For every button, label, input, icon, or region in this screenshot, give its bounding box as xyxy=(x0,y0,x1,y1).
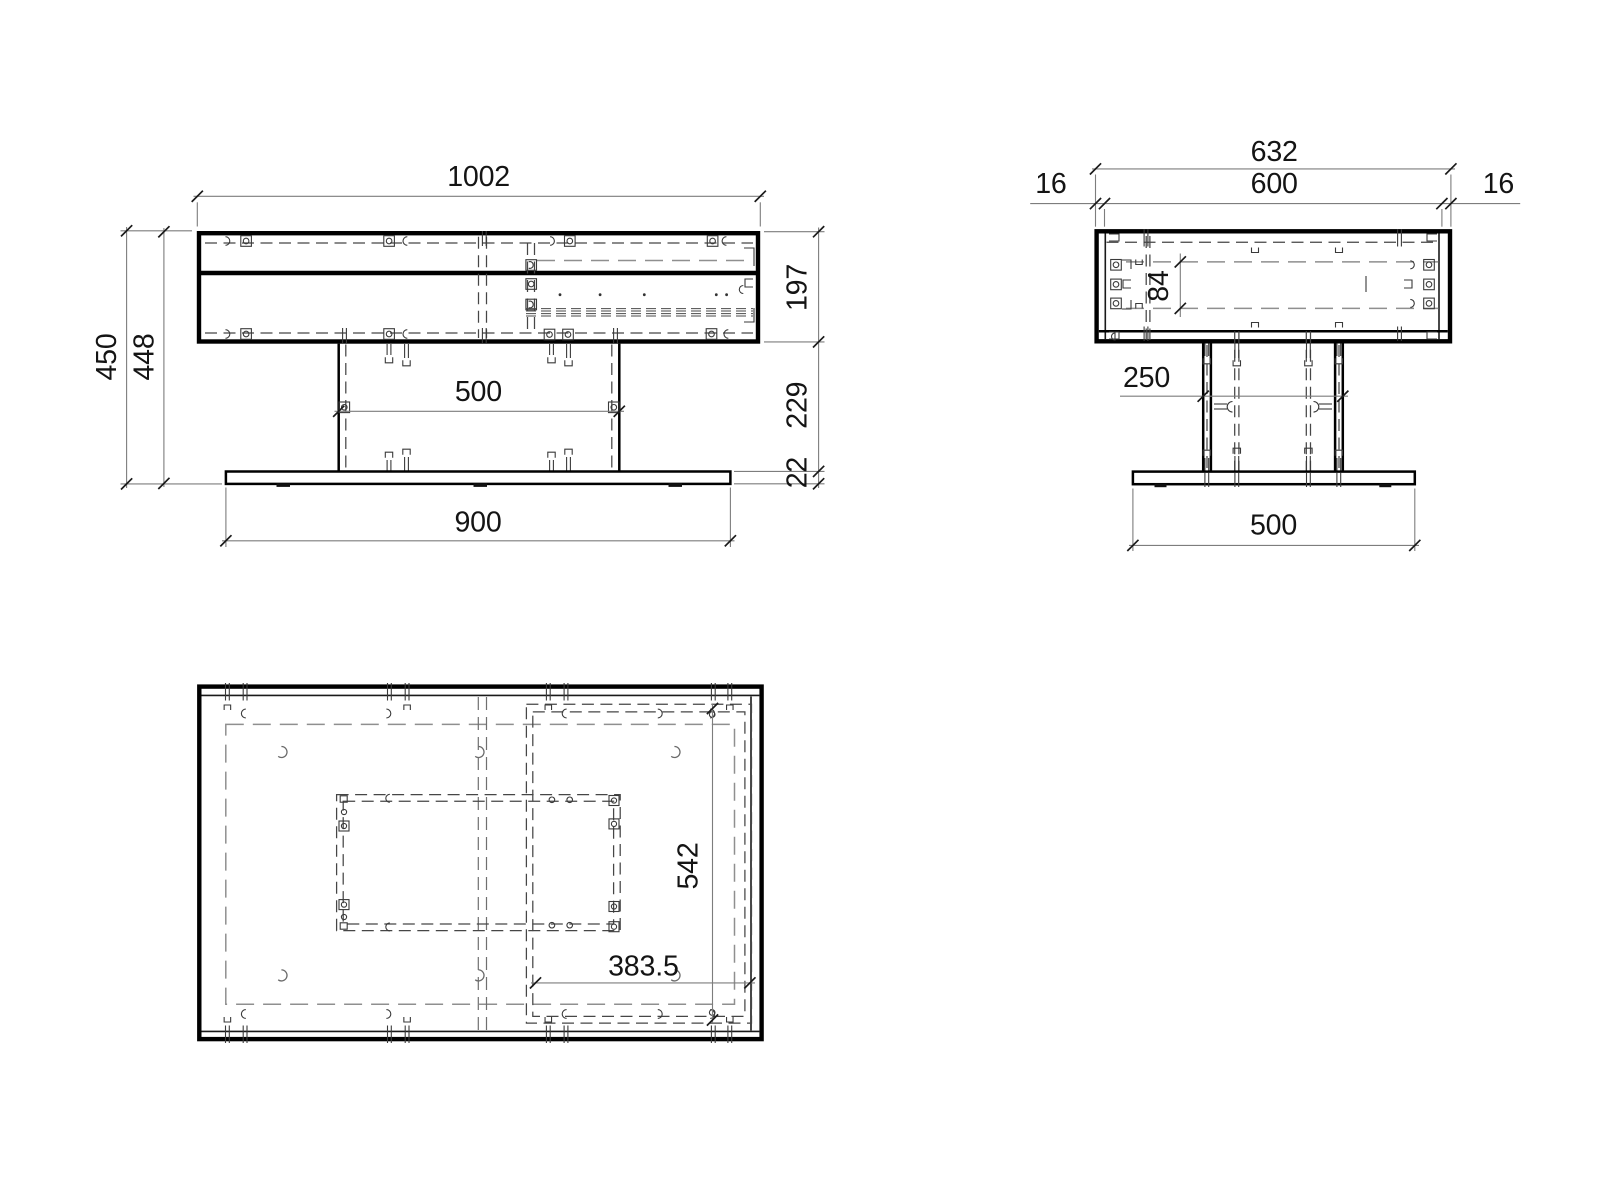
svg-text:450: 450 xyxy=(91,333,123,380)
svg-text:900: 900 xyxy=(454,507,501,539)
svg-text:16: 16 xyxy=(1483,168,1514,200)
svg-text:383.5: 383.5 xyxy=(608,950,679,982)
svg-text:16: 16 xyxy=(1035,168,1066,200)
svg-text:632: 632 xyxy=(1251,136,1298,168)
svg-text:197: 197 xyxy=(781,264,813,311)
svg-text:542: 542 xyxy=(673,842,705,889)
svg-text:22: 22 xyxy=(781,457,813,488)
svg-text:250: 250 xyxy=(1123,362,1170,394)
svg-text:1002: 1002 xyxy=(447,161,510,193)
svg-text:500: 500 xyxy=(1250,510,1297,542)
svg-text:448: 448 xyxy=(129,333,161,380)
svg-text:84: 84 xyxy=(1143,270,1175,302)
svg-text:229: 229 xyxy=(781,382,813,429)
svg-text:500: 500 xyxy=(455,376,502,408)
svg-text:600: 600 xyxy=(1251,168,1298,200)
